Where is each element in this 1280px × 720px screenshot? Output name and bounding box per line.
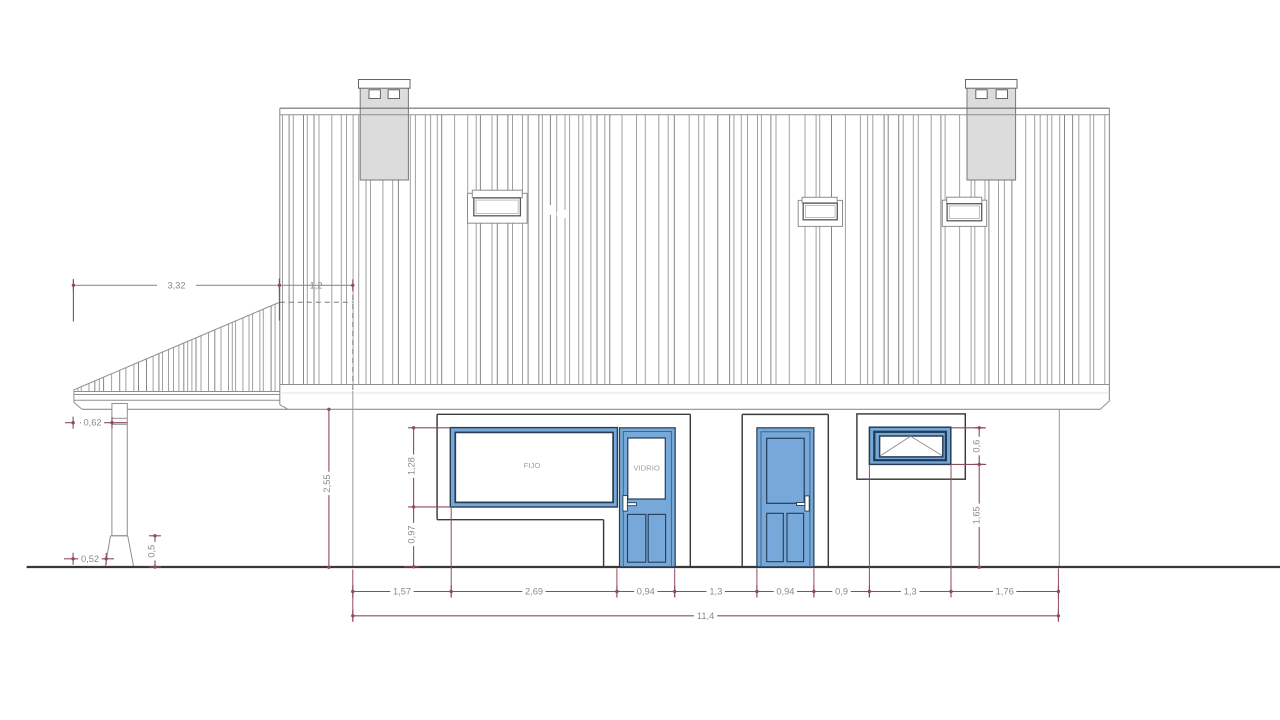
svg-text:1,28: 1,28 <box>407 457 417 475</box>
svg-text:0,97: 0,97 <box>407 525 417 543</box>
svg-text:3,32: 3,32 <box>167 280 185 290</box>
svg-text:1,57: 1,57 <box>393 587 411 597</box>
svg-text:1,2: 1,2 <box>310 280 323 290</box>
svg-text:0,62: 0,62 <box>83 418 101 428</box>
svg-text:0,94: 0,94 <box>776 587 794 597</box>
svg-text:0,5: 0,5 <box>147 545 157 558</box>
svg-text:11,4: 11,4 <box>697 611 714 621</box>
svg-text:VIDRIO: VIDRIO <box>633 464 660 473</box>
svg-text:1,3: 1,3 <box>709 587 722 597</box>
svg-text:0,6: 0,6 <box>972 440 982 453</box>
svg-text:FIJO: FIJO <box>524 461 541 470</box>
svg-text:0,9: 0,9 <box>835 587 848 597</box>
svg-text:1,76: 1,76 <box>996 587 1014 597</box>
svg-text:1,65: 1,65 <box>972 506 982 524</box>
svg-text:2,55: 2,55 <box>322 474 332 492</box>
svg-text:0,94: 0,94 <box>637 587 655 597</box>
svg-text:1,3: 1,3 <box>904 587 917 597</box>
svg-text:0,52: 0,52 <box>81 554 99 564</box>
svg-text:2,69: 2,69 <box>525 587 543 597</box>
